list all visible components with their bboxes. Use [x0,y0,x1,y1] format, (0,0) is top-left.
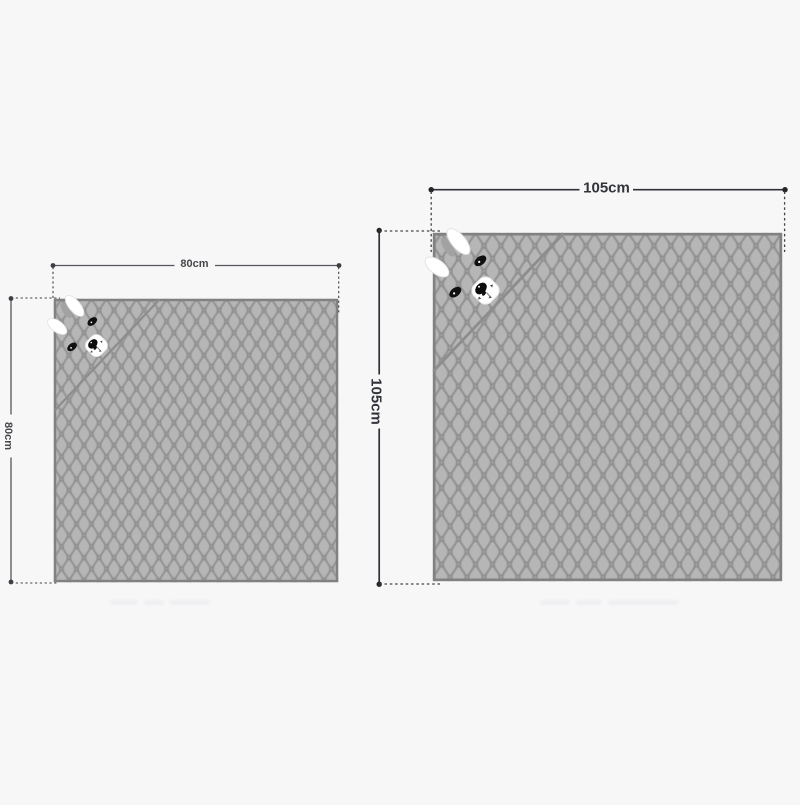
svg-text:80cm: 80cm [2,422,14,450]
svg-text:105cm: 105cm [367,378,384,425]
svg-text:105cm: 105cm [583,179,630,196]
svg-text:80cm: 80cm [180,258,208,270]
